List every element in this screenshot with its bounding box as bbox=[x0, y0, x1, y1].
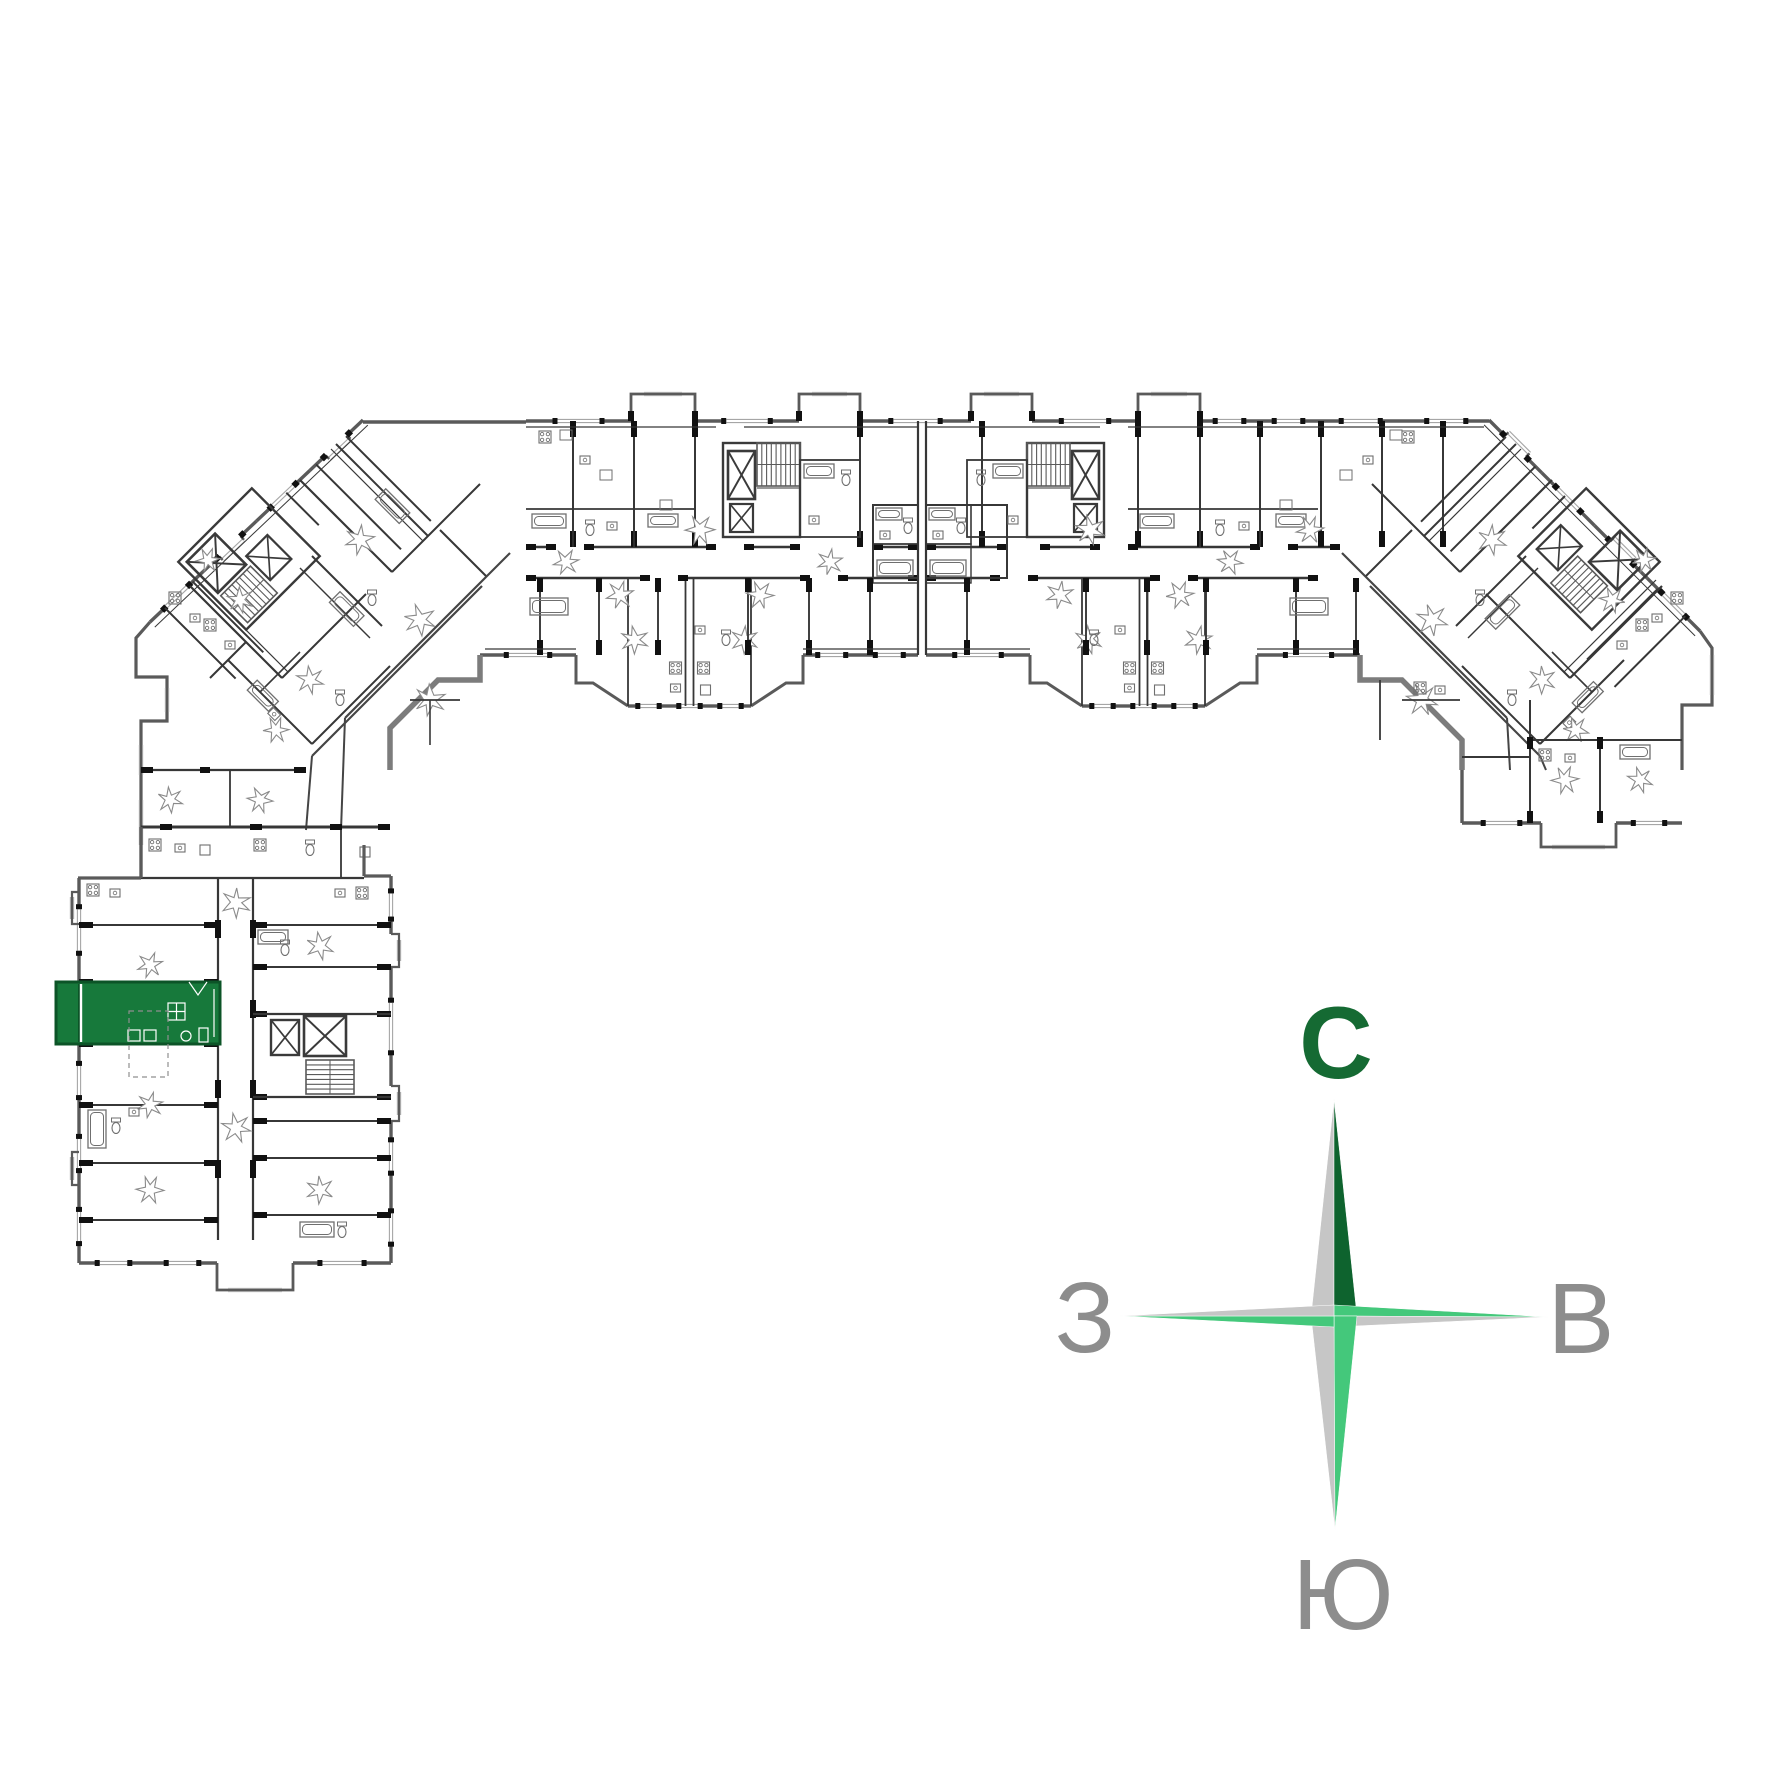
svg-text:З: З bbox=[1055, 1262, 1115, 1374]
svg-text:Ю: Ю bbox=[1292, 1539, 1393, 1651]
svg-text:В: В bbox=[1548, 1263, 1615, 1375]
svg-text:С: С bbox=[1299, 986, 1373, 1100]
